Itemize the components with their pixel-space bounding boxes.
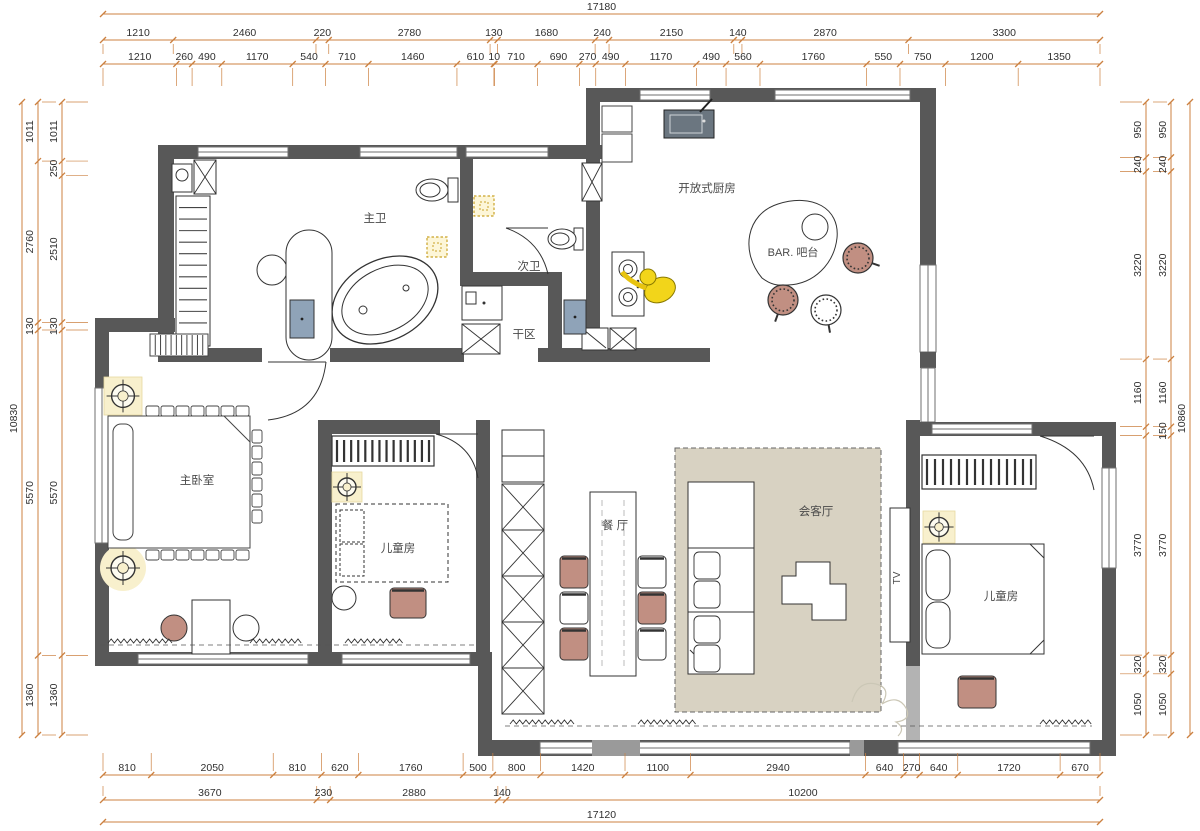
wall-kids-top xyxy=(332,420,440,434)
headboard-cushions xyxy=(146,550,159,560)
kitchen-cabinet xyxy=(602,106,632,132)
dim-value: 130 xyxy=(48,317,60,335)
dim-value: 710 xyxy=(338,51,356,63)
dim-value: 260 xyxy=(175,51,193,63)
curtain xyxy=(1040,720,1091,724)
dim-value: 640 xyxy=(876,762,894,774)
dim-value: 800 xyxy=(508,762,526,774)
headboard-cushions xyxy=(252,462,262,475)
headboard-cushions xyxy=(206,550,219,560)
headboard-cushions xyxy=(236,406,249,416)
dim-total-right: 10860 xyxy=(1176,404,1188,433)
dim-value: 810 xyxy=(118,762,136,774)
cabinet xyxy=(502,430,544,456)
dim-value: 1720 xyxy=(997,762,1021,774)
headboard-cushions xyxy=(252,494,262,507)
headboard-cushions xyxy=(191,550,204,560)
kitchen-sink xyxy=(664,110,714,138)
line xyxy=(872,263,880,266)
dim-value: 750 xyxy=(914,51,932,63)
fixture xyxy=(172,164,192,192)
wall-kitchen-right xyxy=(920,88,936,265)
dim-value: 1011 xyxy=(48,120,60,143)
dim-value: 240 xyxy=(1157,155,1169,173)
door-kids-right xyxy=(1040,436,1094,490)
door-master-bedroom xyxy=(268,362,326,420)
chair-round xyxy=(233,615,259,641)
dim-value: 270 xyxy=(579,51,597,63)
toilet xyxy=(416,179,448,201)
sofa-cushions xyxy=(694,645,720,672)
wall-bed-kids-divider xyxy=(318,420,332,666)
dim-value: 1160 xyxy=(1157,381,1169,404)
sink-dot xyxy=(301,318,304,321)
wardrobe xyxy=(922,455,1036,489)
room-label-master-bath: 主卫 xyxy=(364,212,387,225)
dim-value: 3770 xyxy=(1132,533,1144,557)
dim-value: 810 xyxy=(289,762,307,774)
light-inner xyxy=(118,563,129,574)
dim-value: 250 xyxy=(48,159,60,177)
wardrobe xyxy=(332,436,434,466)
sofa-cushions xyxy=(694,616,720,643)
dim-value: 500 xyxy=(469,762,487,774)
wall-kitchen-left xyxy=(586,88,600,362)
headboard-cushions xyxy=(161,550,174,560)
dim-value: 490 xyxy=(602,51,620,63)
dim-value: 620 xyxy=(331,762,349,774)
dim-value: 490 xyxy=(198,51,216,63)
dim-value: 3220 xyxy=(1157,253,1169,277)
dim-value: 1360 xyxy=(48,683,60,707)
kids-pillow xyxy=(926,550,950,600)
grille xyxy=(150,334,208,356)
desk xyxy=(192,600,230,654)
dim-value: 1170 xyxy=(650,51,673,63)
light-inner xyxy=(935,523,944,532)
dim-value: 230 xyxy=(315,787,333,799)
room-label-kitchen: 开放式厨房 xyxy=(678,181,736,195)
sofa-cushions xyxy=(694,581,720,608)
wall-kids-dining xyxy=(476,420,490,656)
room-label-living: 会客厅 xyxy=(799,504,834,518)
dim-value: 1100 xyxy=(646,762,669,774)
dim-value: 320 xyxy=(1132,656,1144,674)
kids-chair xyxy=(390,588,426,618)
dim-value: 610 xyxy=(467,51,485,63)
vanity xyxy=(286,230,332,360)
window-mullion xyxy=(592,740,640,756)
dim-value: 550 xyxy=(875,51,893,63)
dim-value: 2870 xyxy=(814,27,838,39)
dim-value: 1360 xyxy=(24,683,36,707)
headboard-cushions xyxy=(221,406,234,416)
dining-chair xyxy=(638,556,666,588)
light-inner xyxy=(118,391,128,401)
line xyxy=(775,314,778,322)
headboard-cushions xyxy=(161,406,174,416)
headboard-cushions xyxy=(252,478,262,491)
light-inner xyxy=(343,483,351,491)
dim-value: 3770 xyxy=(1157,533,1169,557)
dim-value: 140 xyxy=(729,27,747,39)
dim-value: 150 xyxy=(1157,422,1169,440)
window-mullion xyxy=(850,740,864,756)
dim-value: 2880 xyxy=(402,787,426,799)
light-dashed xyxy=(427,237,447,257)
dining-chair xyxy=(560,592,588,624)
dim-value: 1050 xyxy=(1157,693,1169,717)
dim-value: 1680 xyxy=(535,27,559,39)
door-kids-left xyxy=(436,434,478,478)
dim-value: 2510 xyxy=(48,237,60,261)
vanity-basin xyxy=(257,255,287,285)
dim-value: 5570 xyxy=(24,481,36,505)
curtain xyxy=(510,720,574,724)
wall xyxy=(460,272,548,286)
dining-chair xyxy=(638,592,666,624)
dim-value: 1160 xyxy=(1132,381,1144,404)
dim-value: 540 xyxy=(300,51,318,63)
dim-total-bottom: 17120 xyxy=(587,809,616,821)
dim-value: 2780 xyxy=(398,27,422,39)
kids-chair xyxy=(958,676,996,708)
headboard-cushions xyxy=(236,550,249,560)
wall xyxy=(548,272,562,362)
room-label-master-bedroom: 主卧室 xyxy=(180,473,215,487)
dim-value: 1760 xyxy=(399,762,423,774)
dim-value: 670 xyxy=(1071,762,1089,774)
dim-value: 1420 xyxy=(571,762,595,774)
bar-table xyxy=(749,200,837,285)
dim-total-top: 17180 xyxy=(587,1,616,13)
dim-value: 710 xyxy=(507,51,525,63)
wall-bath-divider xyxy=(460,158,473,274)
dining-chair xyxy=(560,628,588,660)
headboard-cushions xyxy=(176,550,189,560)
headboard-cushions xyxy=(191,406,204,416)
dim-value: 3670 xyxy=(198,787,222,799)
dim-value: 220 xyxy=(314,27,332,39)
room-label-second-bath: 次卫 xyxy=(518,259,541,273)
sink-dot xyxy=(574,316,577,319)
sofa-cushions xyxy=(694,552,720,579)
headboard-cushions xyxy=(252,510,262,523)
curtain xyxy=(108,639,172,643)
dim-value: 10 xyxy=(488,51,500,63)
wall xyxy=(478,652,492,756)
floor-plan-canvas: 开放式厨房BAR. 吧台主卫次卫干区主卧室儿童房餐 厅会客厅儿童房TV17180… xyxy=(0,0,1200,831)
headboard-cushions xyxy=(252,446,262,459)
dim-total-left: 10830 xyxy=(8,404,20,433)
washer-dot xyxy=(483,302,486,305)
dim-value: 320 xyxy=(1157,656,1169,674)
shelf xyxy=(176,196,210,346)
label-tv: TV xyxy=(892,571,903,584)
light-dashed xyxy=(474,196,494,216)
dim-value: 1200 xyxy=(970,51,994,63)
toilet-tank xyxy=(448,178,458,202)
curtain xyxy=(250,639,301,643)
room-label-kids-right: 儿童房 xyxy=(984,589,1019,603)
dim-value: 5570 xyxy=(48,481,60,505)
kitchen-cabinet xyxy=(602,134,632,162)
room-label-dry-area: 干区 xyxy=(513,329,536,341)
floor-plan-page: 开放式厨房BAR. 吧台主卫次卫干区主卧室儿童房餐 厅会客厅儿童房TV17180… xyxy=(0,0,1200,831)
dim-value: 490 xyxy=(702,51,720,63)
dim-value: 690 xyxy=(550,51,568,63)
headboard-cushions xyxy=(252,430,262,443)
dim-value: 1350 xyxy=(1047,51,1071,63)
toilet xyxy=(548,229,576,249)
dim-value: 130 xyxy=(485,27,503,39)
dining-chair xyxy=(560,556,588,588)
curtain xyxy=(345,639,403,643)
dim-value: 2050 xyxy=(201,762,225,774)
dim-value: 1760 xyxy=(802,51,826,63)
headboard-cushions xyxy=(176,406,189,416)
wall-bath-bottom xyxy=(330,348,464,362)
headboard-cushions xyxy=(146,406,159,416)
dim-value: 2460 xyxy=(233,27,257,39)
dim-value: 1210 xyxy=(128,51,152,63)
person-head xyxy=(640,269,656,285)
curtain xyxy=(638,720,696,724)
kids-pillow xyxy=(926,602,950,648)
sink-dot xyxy=(703,120,706,123)
cabinet xyxy=(502,456,544,482)
dim-value: 10200 xyxy=(788,787,817,799)
dim-value: 1210 xyxy=(126,27,150,39)
dining-chair xyxy=(638,628,666,660)
dim-value: 2150 xyxy=(660,27,684,39)
line xyxy=(829,325,830,333)
dim-value: 1050 xyxy=(1132,693,1144,717)
dim-value: 560 xyxy=(734,51,752,63)
dim-value: 240 xyxy=(593,27,611,39)
room-label-dining: 餐 厅 xyxy=(602,518,628,532)
dim-value: 3220 xyxy=(1132,253,1144,277)
dim-value: 270 xyxy=(903,762,921,774)
dim-value: 640 xyxy=(930,762,948,774)
dim-value: 1011 xyxy=(24,120,36,143)
dim-value: 3300 xyxy=(993,27,1017,39)
bar-sink xyxy=(802,214,828,240)
dim-value: 1170 xyxy=(246,51,269,63)
headboard-cushions xyxy=(221,550,234,560)
dim-value: 140 xyxy=(493,787,511,799)
bed-pillow xyxy=(113,424,133,540)
headboard-cushions xyxy=(206,406,219,416)
dim-value: 950 xyxy=(1132,121,1144,139)
wall xyxy=(920,352,936,368)
dim-value: 1460 xyxy=(401,51,425,63)
dim-value: 130 xyxy=(24,317,36,335)
dim-value: 240 xyxy=(1132,155,1144,173)
balcony-pass xyxy=(906,666,920,740)
chair-round xyxy=(161,615,187,641)
dim-value: 950 xyxy=(1157,121,1169,139)
washer-inner xyxy=(466,292,476,304)
dim-value: 2940 xyxy=(766,762,790,774)
dim-value: 2760 xyxy=(24,230,36,254)
stool-round xyxy=(332,586,356,610)
label-bar: BAR. 吧台 xyxy=(768,245,819,259)
room-label-kids-left: 儿童房 xyxy=(381,541,416,555)
